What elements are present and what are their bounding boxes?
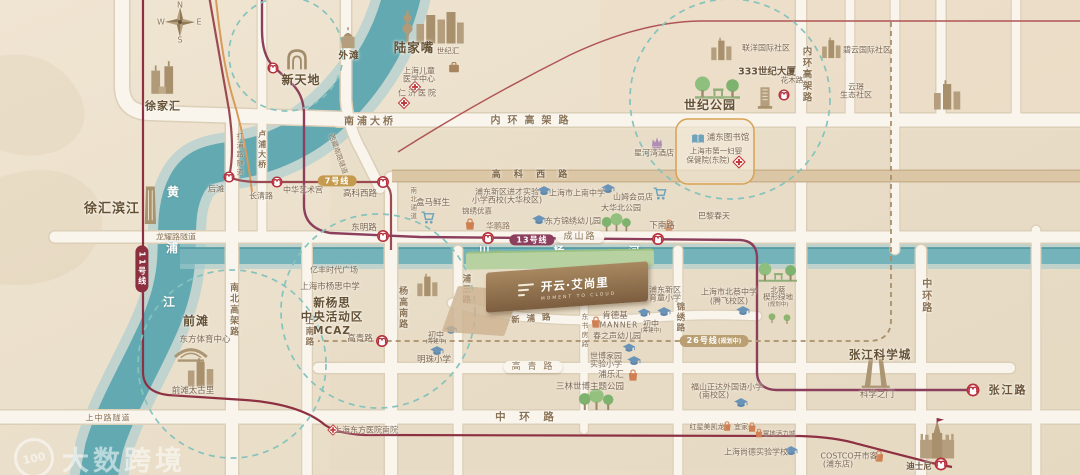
line11-badge: 11号线 [135,245,148,292]
xuhui-riverside-building-icon [141,184,161,226]
line26-label: 26号线 [687,336,718,345]
houtan-station-icon [223,171,235,183]
road-nanbei-passage: 南北通道 [408,187,415,221]
poi-sams: 山姆会员店 [613,192,653,201]
poi-dahua-park: 大华北公园 [601,203,641,212]
road-dongshufang: 东书房路 [581,313,589,349]
poi-library: 浦东图书馆 [707,134,750,144]
poi-xinghewan: 星河湾酒店 [634,148,674,157]
huangpu-river-label: 浦 [166,242,178,256]
station-dongming: 东明路 [351,224,377,234]
poi-macalline: 红星美凯龙 [690,423,725,431]
library-book-icon [690,131,707,148]
zhangjiang-station-icon [966,383,980,397]
huangpu-river-label: 黄 [167,186,179,200]
road-gaoqing: 高 青 路 [504,361,563,373]
line26-planned-note: (规划中) [718,338,742,345]
station-disney: 迪士尼 [906,463,932,473]
station-zhangjiang: 张江路 [989,385,1028,398]
poi-jincai-school: 小学西校(大华校区) [472,195,542,204]
road-mid-ring-v: 中环路 [919,278,931,314]
project-logo-icon [518,283,534,296]
poi-oriental-sports: 东方体育中心 [179,336,230,346]
beicai-green-park-icon [756,259,800,285]
beicai-tree-icon [781,313,794,326]
poi-ikea: 宜家 [734,423,748,431]
area-shijihui: 世纪汇 [437,48,460,57]
poi-manner: MANNER [600,322,639,331]
beicai-school-icon [736,304,751,319]
poi-beicai-middle-school: (腾飞校区) [710,296,748,305]
poi-junior-school-note: (筹建中) [426,339,447,345]
poi-renji-hospital: 仁济医院 [398,88,438,97]
compass-n: N [177,0,183,9]
compass-e: E [196,17,201,26]
xintiandi-arch-icon [284,46,310,72]
biyun-buildings-icon [820,36,844,60]
project-tagline: MOMENT TO CLOUD [541,292,616,302]
poi-tower333: 333世纪大厦 [738,68,796,79]
area-qiantan: 前滩 [183,315,209,329]
poi-printemps: 巴黎春天 [698,211,730,220]
poi-children-hospital: 医学中心 [403,74,435,83]
poi-science-gate: 科学之门 [860,391,894,401]
road-nanpu-bridge: 南浦大桥 [344,116,396,128]
poi-yifeng: 亿丰时代广场 [310,265,358,274]
hema-cart-icon [420,209,436,225]
area-mcaz-line1: 新杨思 [313,296,351,309]
poi-shangde-school: 上海尚德实验学校 [724,447,788,456]
poi-junior-school-note: (筹建中) [641,328,662,334]
road-dapu-tunnel: 打浦路隧道 [236,133,244,178]
dahua-park-trees-icon [600,211,634,233]
poi-beicai-green-note: (规划中) [768,302,789,308]
poi-mingzhu-school: 明珠小学 [417,356,451,366]
poi-yutong-school: 育童小学 [649,293,681,302]
poi-yangsi-middle-school: 上海市杨思中学 [300,283,360,293]
pulehui-bag-icon [626,368,640,382]
poi-dongfang-hospital: 上海东方医院南院 [334,425,398,434]
watermark: 100 大数跨境 [14,438,186,475]
road-jinxiu: 锦绣路 [674,302,684,334]
changqing-station-icon [271,176,283,188]
area-waitan: 外滩 [338,52,359,63]
poi-sanlin-park: 三林世博主题公园 [556,383,624,393]
waitan-dome-icon [336,26,360,50]
road-shangzhong-tunnel: 上中路隧道 [86,413,131,422]
poi-costco: (浦东店) [823,459,853,468]
road-nanbei-elevated: 南北高架路 [228,283,238,338]
jinxiu-youjia-bag-icon [463,217,477,231]
station-xianan: 下南路 [649,222,675,232]
lujiazui-skyline-icon [397,6,467,44]
poi-yidi: 翼地活力城 [763,430,796,437]
road-inner-ring-h: 内环高架路 [491,115,576,127]
taikoo-li-buildings-icon [185,356,217,388]
line7-badge: 7号线 [318,175,357,186]
area-century-park: 世纪公园 [684,99,736,113]
area-xujiahui: 徐家汇 [145,101,181,114]
area-lujiazui: 陆家嘴 [394,41,435,55]
poi-biyun: 碧云国际社区 [843,45,891,54]
poi-hema: 盒马鲜生 [416,199,450,209]
beicai-tree-icon [766,312,779,325]
road-longyao-tunnel: 龙耀路隧道 [156,232,196,241]
road-chengshan: 成山路 [555,231,604,243]
poi-yunjing: 生态社区 [840,90,872,99]
huapeng-station-icon [482,232,495,245]
xianan-station-icon [652,233,665,246]
junior-school-icon [637,306,651,320]
road-huapeng: 华鹏路 [486,221,510,230]
compass-w: W [157,17,165,26]
station-changqing: 长清路 [249,191,273,200]
shijihui-briefcase-icon [447,60,462,75]
expo-primary-school-icon [627,354,642,369]
gaoqing-station-icon [376,335,389,348]
road-lupu-bridge: 卢浦大桥 [257,130,266,170]
poi-beicai-middle-school: 上海市北蔡中学 [701,287,757,296]
poi-lianyang: 联洋国际社区 [742,43,790,52]
gaokexi-station-icon [377,176,390,189]
road-gaoke-west: 高 科 西 路 [492,170,572,180]
maternity-hospital-icon [732,155,746,169]
road-yanggao-south: 杨高南路 [397,286,407,330]
disney-station-icon [934,457,948,471]
xujiahui-towers-icon [147,59,179,97]
station-gaokexi: 高科西路 [343,190,377,200]
watermark-logo-icon: 100 [10,434,57,475]
poi-expo-primary: 实验小学 [590,359,622,368]
xintiandi-station-icon [267,62,279,74]
poi-first-maternity: 保健院(东院) [686,157,729,166]
project-name: 开云·艾尚里 [541,275,609,294]
station-gaoqing: 高青路 [347,335,373,345]
compass-s: S [177,35,182,44]
disney-castle-icon [915,416,959,460]
decorative-towers-icon [931,78,965,112]
poi-dongfang-kindergarten: 东方锦绣幼儿园 [545,216,601,225]
poi-pulehui: 浦乐汇 [598,371,624,381]
decorative-towers-icon [415,272,441,298]
line26-badge: 26号线(规划中) [680,335,749,347]
poi-taikoo-li: 前滩太古里 [172,387,215,397]
area-xuhui-riverside: 徐汇滨江 [84,203,140,218]
location-map: N W E S 徐家汇 新天地 外滩 陆家嘴 世纪汇 世纪公园 前滩 徐汇滨江 … [0,0,1080,475]
dongming-station-icon [377,230,390,243]
poi-fushan-school: (南校区) [699,390,729,399]
poi-shangnan-middle-school: 上海市上南中学 [549,188,605,197]
station-houtan: 后滩 [208,184,224,193]
area-xintiandi: 新天地 [281,74,320,88]
huamu-station-icon [778,89,790,101]
line13-badge: 13号线 [509,234,554,245]
huangpu-river-label: 江 [163,296,175,310]
sams-cart-icon [652,185,668,201]
watermark-brand: 大数跨境 [62,439,186,475]
poi-chunzhisheng-kindergarten: 春之声幼儿园 [593,331,641,340]
road-mid-ring-h: 中 环 路 [495,411,559,423]
renji-hospital-icon [398,97,411,110]
yutong-school-icon [657,305,672,320]
lianyang-buildings-icon [709,36,735,62]
fushan-school-icon [734,396,749,411]
road-shangnan: 上南路 [303,316,313,348]
area-zhangjiang: 张江科学城 [849,348,912,361]
tower333-icon [752,84,778,110]
station-art-palace: 中华艺术宫 [283,185,323,194]
area-mcaz-line3: MCAZ [313,325,351,337]
poi-jinxiu-youjia: 锦绣优嘉 [462,208,492,217]
